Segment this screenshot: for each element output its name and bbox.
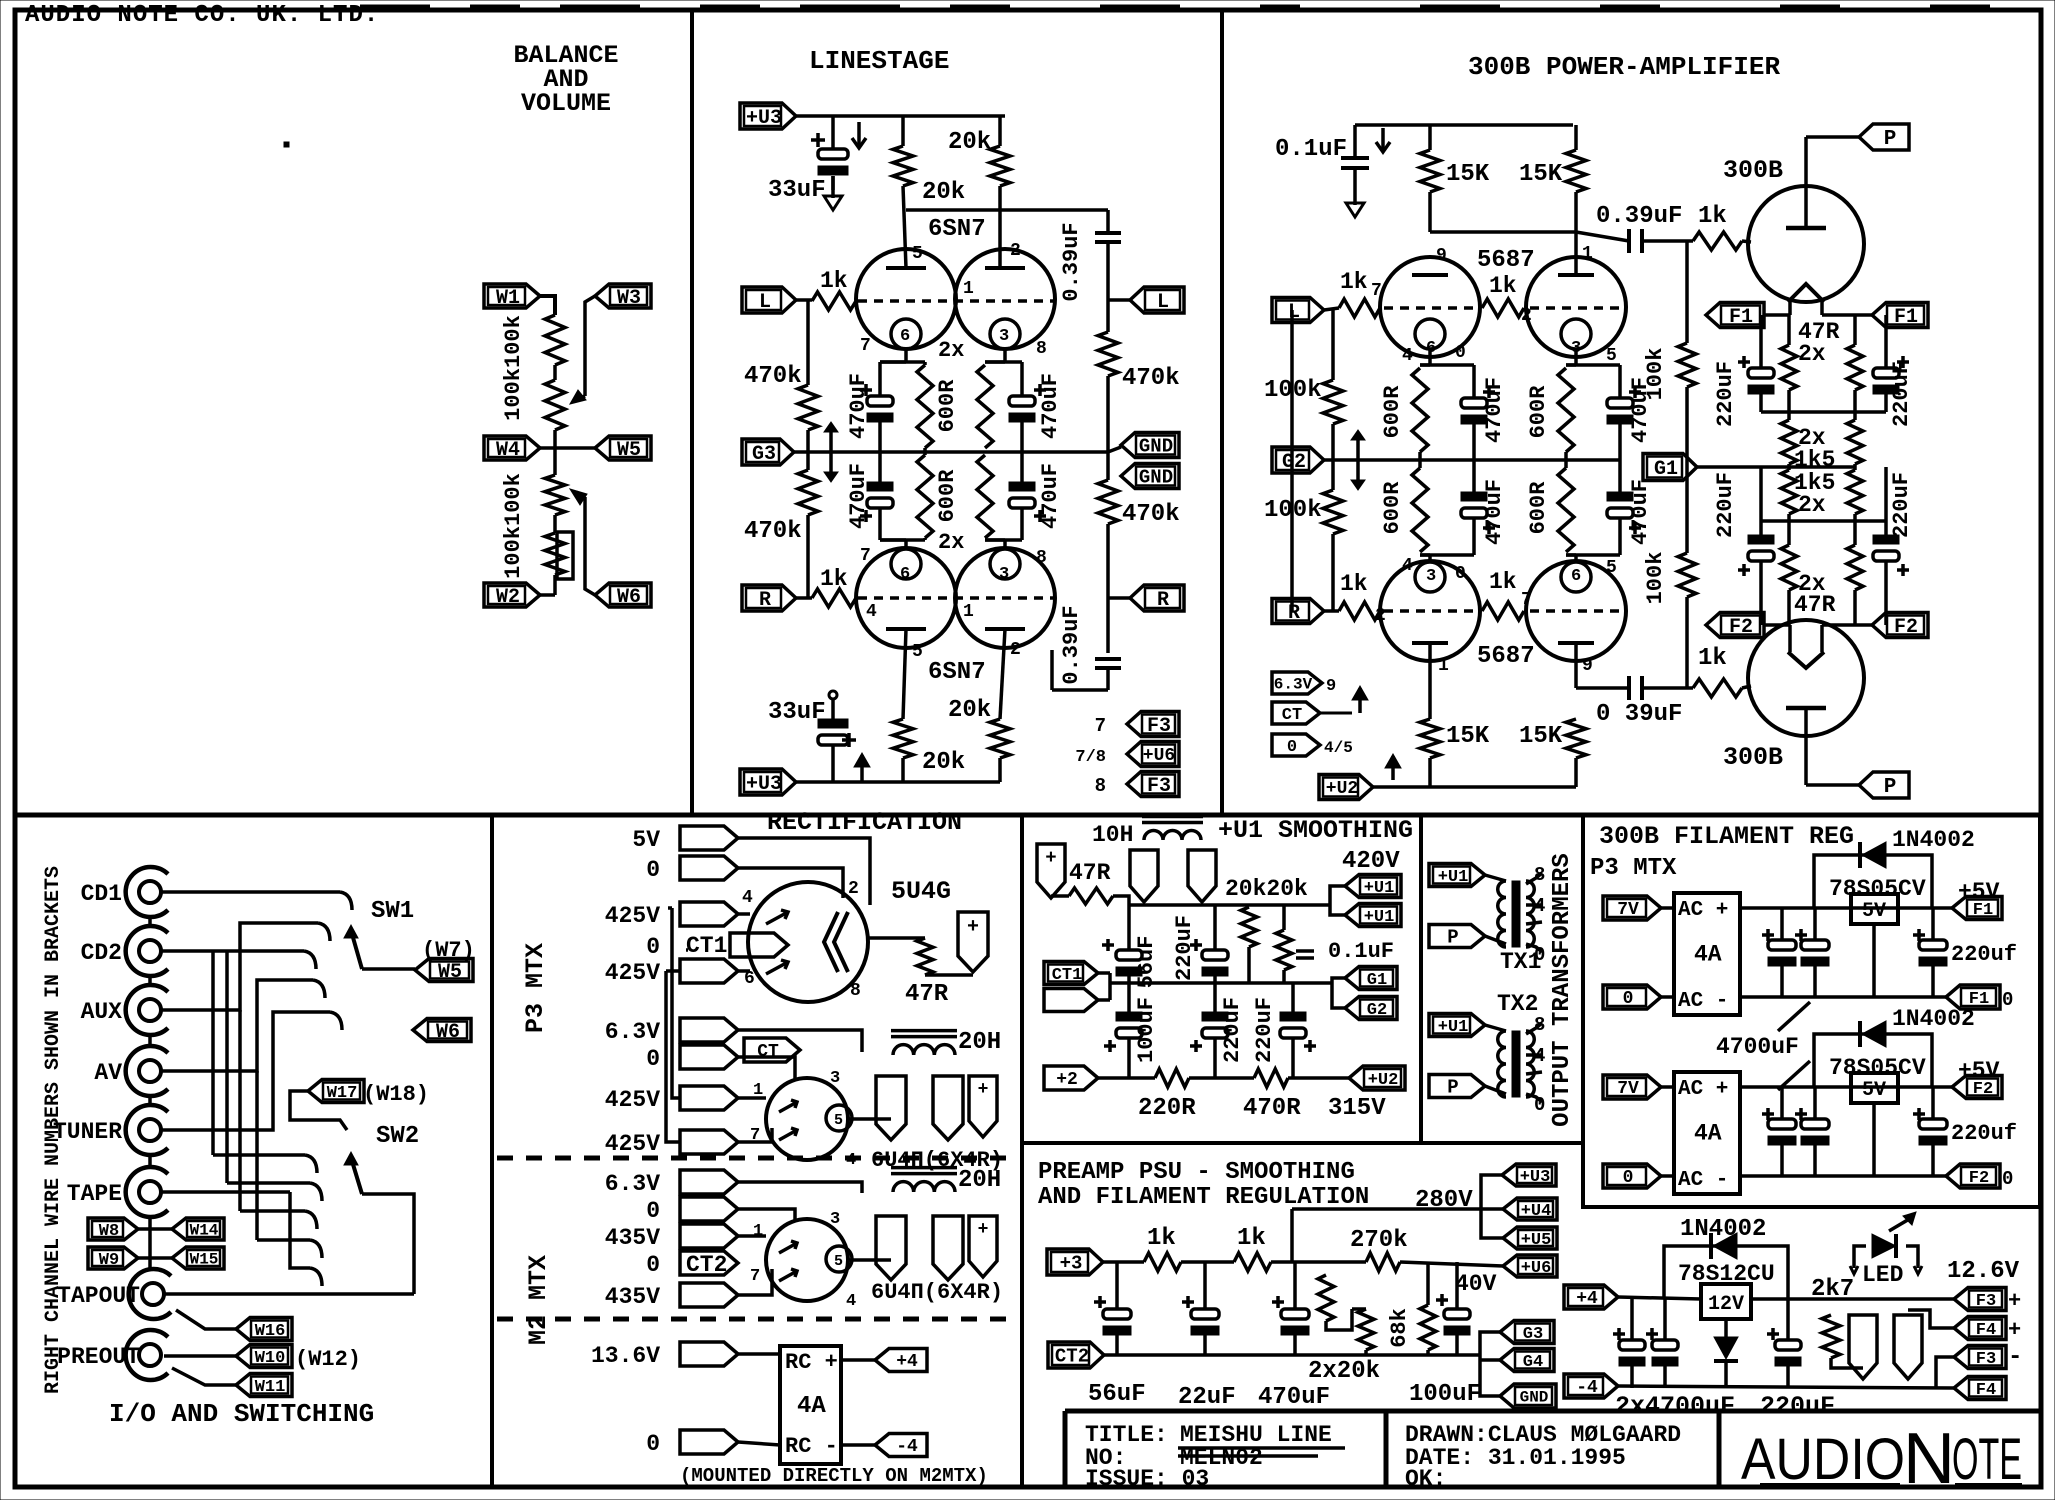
svg-text:100uF: 100uF: [1134, 997, 1159, 1063]
svg-text:0: 0: [646, 1431, 660, 1457]
svg-text:220uF: 220uF: [1760, 1392, 1835, 1421]
svg-text:3: 3: [999, 327, 1009, 346]
svg-text:68k: 68k: [1387, 1308, 1412, 1348]
svg-text:CT2: CT2: [686, 1252, 727, 1278]
svg-text:0: 0: [1455, 343, 1466, 363]
svg-text:8: 8: [1036, 548, 1047, 568]
svg-text:1k: 1k: [1340, 269, 1368, 295]
svg-text:6: 6: [1571, 567, 1581, 586]
svg-text:7V: 7V: [1617, 900, 1639, 920]
svg-text:+U3: +U3: [1520, 1168, 1551, 1187]
svg-text:600R: 600R: [1526, 385, 1551, 439]
svg-text:470k: 470k: [1122, 501, 1180, 528]
svg-text:470uF: 470uF: [1482, 377, 1507, 443]
svg-text:F1: F1: [1894, 306, 1918, 329]
svg-text:15K: 15K: [1446, 161, 1490, 188]
svg-text:220uf: 220uf: [1951, 942, 2017, 967]
svg-text:600R: 600R: [935, 469, 960, 523]
svg-text:W14: W14: [190, 1221, 219, 1239]
svg-text:6.3V: 6.3V: [1274, 675, 1313, 693]
svg-text:+U2: +U2: [1368, 1071, 1399, 1090]
svg-text:220R: 220R: [1138, 1095, 1196, 1122]
svg-text:SW2: SW2: [376, 1123, 419, 1150]
svg-text:F2: F2: [1969, 1169, 1989, 1188]
svg-text:L: L: [1157, 291, 1169, 314]
svg-text:F3: F3: [1976, 1292, 1996, 1311]
svg-text:470uF: 470uF: [1038, 373, 1063, 439]
svg-text:PREAMP PSU - SMOOTHING: PREAMP PSU - SMOOTHING: [1038, 1159, 1355, 1186]
svg-text:W4: W4: [496, 439, 520, 462]
svg-text:G3: G3: [752, 443, 776, 466]
svg-text:PREOUT: PREOUT: [57, 1344, 140, 1370]
svg-text:100k: 100k: [1264, 497, 1322, 524]
svg-text:470uF: 470uF: [846, 463, 871, 529]
svg-text:47R: 47R: [1794, 592, 1836, 618]
svg-text:G2: G2: [1367, 1001, 1387, 1020]
svg-text:RC +: RC +: [785, 1350, 838, 1375]
svg-text:0: 0: [1287, 738, 1297, 757]
svg-text:+2: +2: [1056, 1070, 1078, 1090]
svg-text:+: +: [2008, 1289, 2021, 1314]
svg-text:TUNER: TUNER: [53, 1119, 122, 1145]
svg-text:8: 8: [1036, 339, 1047, 359]
svg-text:AND FILAMENT REGULATION: AND FILAMENT REGULATION: [1038, 1184, 1369, 1211]
svg-text:6.3V: 6.3V: [605, 1171, 660, 1197]
svg-text:CT1: CT1: [686, 933, 727, 959]
svg-text:220uF: 220uF: [1889, 472, 1914, 538]
svg-text:AC -: AC -: [1678, 1169, 1728, 1192]
svg-text:W17: W17: [327, 1084, 358, 1103]
svg-text:F3: F3: [1976, 1350, 1996, 1369]
svg-text:+: +: [978, 1080, 989, 1100]
svg-text:220uF: 220uF: [1220, 997, 1245, 1063]
svg-text:SW1: SW1: [371, 898, 414, 925]
svg-text:600R: 600R: [1526, 481, 1551, 535]
svg-text:W2: W2: [496, 586, 520, 609]
svg-text:300B FILAMENT REG: 300B FILAMENT REG: [1599, 822, 1854, 851]
svg-text:CT: CT: [1282, 706, 1302, 725]
svg-text:LED: LED: [1862, 1262, 1903, 1288]
svg-text:100k100k: 100k100k: [501, 315, 526, 421]
svg-text:4: 4: [1534, 1045, 1545, 1067]
svg-text:4A: 4A: [797, 1393, 826, 1420]
svg-text:AV: AV: [94, 1060, 122, 1086]
svg-text:8: 8: [1534, 1014, 1545, 1036]
svg-text:R: R: [1157, 589, 1169, 612]
svg-text:5V: 5V: [632, 827, 660, 853]
svg-text:1: 1: [963, 602, 974, 622]
svg-text:GND: GND: [1139, 435, 1173, 457]
svg-text:G2: G2: [1282, 451, 1306, 474]
svg-text:0.39uF: 0.39uF: [1059, 222, 1084, 301]
svg-text:OK:: OK:: [1405, 1466, 1446, 1492]
svg-text:4: 4: [846, 1292, 856, 1311]
svg-text:20H: 20H: [958, 1167, 1001, 1194]
svg-text:15K: 15K: [1519, 161, 1563, 188]
svg-text:315V: 315V: [1328, 1095, 1386, 1122]
svg-text:220uf: 220uf: [1951, 1121, 2017, 1146]
svg-text:600R: 600R: [935, 379, 960, 433]
svg-text:22uF: 22uF: [1178, 1384, 1236, 1411]
svg-text:ISSUE: 03: ISSUE: 03: [1085, 1466, 1209, 1492]
svg-text:600R: 600R: [1380, 481, 1405, 535]
svg-text:5: 5: [912, 642, 923, 662]
svg-text:0.1uF: 0.1uF: [1328, 939, 1394, 964]
svg-text:F3: F3: [1147, 775, 1171, 798]
svg-text:1N4002: 1N4002: [1892, 827, 1975, 853]
svg-text:56uF: 56uF: [1134, 936, 1159, 989]
svg-text:G4: G4: [1523, 1353, 1543, 1372]
svg-text:0: 0: [1455, 564, 1466, 584]
svg-text:W3: W3: [617, 287, 641, 310]
svg-text:OTE: OTE: [1952, 1427, 2022, 1492]
svg-text:470uF: 470uF: [1038, 463, 1063, 529]
svg-text:2: 2: [1010, 640, 1021, 660]
svg-text:+U1: +U1: [1364, 908, 1395, 927]
svg-text:220uF: 220uF: [1889, 361, 1914, 427]
svg-text:4: 4: [1534, 895, 1545, 917]
svg-text:20k: 20k: [922, 749, 965, 776]
svg-text:P: P: [1884, 776, 1897, 799]
svg-text:1k: 1k: [1489, 273, 1517, 299]
svg-text:+U1 SMOOTHING: +U1 SMOOTHING: [1218, 816, 1413, 845]
svg-text:425V: 425V: [605, 1087, 660, 1113]
svg-text:+4: +4: [896, 1352, 918, 1372]
svg-text:2x: 2x: [1798, 492, 1826, 518]
svg-text:5V: 5V: [1862, 1079, 1886, 1102]
svg-text:+U1: +U1: [1438, 1018, 1469, 1037]
svg-text:4: 4: [742, 888, 753, 908]
svg-text:-4: -4: [896, 1437, 918, 1457]
svg-text:1: 1: [1582, 244, 1593, 264]
svg-text:6: 6: [900, 327, 910, 346]
svg-text:VOLUME: VOLUME: [521, 89, 611, 118]
svg-text:W6: W6: [617, 586, 641, 609]
svg-text:8: 8: [1534, 864, 1545, 886]
svg-text:0: 0: [646, 1252, 660, 1278]
svg-text:600R: 600R: [1380, 385, 1405, 439]
svg-text:5: 5: [912, 244, 923, 264]
svg-text:7V: 7V: [1617, 1079, 1639, 1099]
svg-text:5: 5: [834, 1253, 843, 1270]
svg-text:220uF: 220uF: [1713, 361, 1738, 427]
svg-text:TX1: TX1: [1500, 949, 1541, 975]
svg-text:TAPOUT: TAPOUT: [57, 1283, 140, 1309]
svg-text:1k: 1k: [1147, 1225, 1176, 1252]
svg-text:9: 9: [1436, 246, 1447, 266]
svg-text:P3 MTX: P3 MTX: [521, 943, 550, 1033]
svg-text:W8: W8: [99, 1222, 119, 1241]
svg-text:+U6: +U6: [1521, 1259, 1552, 1278]
svg-text:2x20k: 2x20k: [1308, 1358, 1380, 1385]
svg-text:AC +: AC +: [1678, 899, 1728, 922]
svg-text:220uF: 220uF: [1713, 472, 1738, 538]
svg-text:0 39uF: 0 39uF: [1596, 701, 1682, 728]
svg-text:425V: 425V: [605, 960, 660, 986]
svg-text:CD1: CD1: [81, 881, 122, 907]
svg-text:12V: 12V: [1708, 1293, 1744, 1316]
svg-text:300B: 300B: [1723, 743, 1783, 772]
svg-text:+: +: [978, 1220, 989, 1240]
svg-text:4: 4: [866, 602, 877, 622]
svg-text:M2 MTX: M2 MTX: [524, 1255, 553, 1345]
svg-text:47R: 47R: [905, 981, 949, 1008]
svg-text:4A: 4A: [1694, 942, 1722, 968]
svg-text:7: 7: [860, 336, 871, 356]
svg-text:33uF: 33uF: [768, 177, 826, 204]
svg-text:G1: G1: [1654, 458, 1678, 481]
svg-text:15K: 15K: [1519, 723, 1563, 750]
svg-text:W1: W1: [496, 287, 520, 310]
svg-text:P: P: [1447, 926, 1458, 948]
svg-text:0.1uF: 0.1uF: [1275, 136, 1347, 163]
svg-text:AC -: AC -: [1678, 990, 1728, 1013]
svg-text:0: 0: [1534, 1094, 1545, 1116]
svg-text:P: P: [1884, 128, 1897, 151]
svg-text:3: 3: [1426, 567, 1436, 586]
svg-text:2x: 2x: [1798, 341, 1826, 367]
svg-text:P: P: [1447, 1076, 1458, 1098]
svg-text:AUDIO NOTE CO. UK. LTD.: AUDIO NOTE CO. UK. LTD.: [25, 2, 379, 29]
svg-text:3: 3: [830, 1210, 840, 1229]
svg-text:2x: 2x: [938, 530, 964, 555]
svg-text:F1: F1: [1729, 306, 1753, 329]
svg-text:-4: -4: [1576, 1378, 1598, 1398]
svg-text:+U1: +U1: [1438, 868, 1469, 887]
svg-text:0: 0: [2002, 989, 2013, 1011]
svg-text:470uF: 470uF: [846, 373, 871, 439]
svg-text:W6: W6: [436, 1021, 460, 1044]
svg-text:300B POWER-AMPLIFIER: 300B POWER-AMPLIFIER: [1468, 52, 1780, 82]
svg-text:1k: 1k: [1698, 203, 1727, 230]
svg-text:7: 7: [1095, 715, 1106, 737]
svg-text:4: 4: [1402, 346, 1413, 366]
svg-text:0: 0: [1623, 989, 1634, 1009]
svg-text:AC +: AC +: [1678, 1078, 1728, 1101]
svg-text:(W18): (W18): [363, 1082, 429, 1107]
svg-text:13.6V: 13.6V: [591, 1343, 660, 1369]
svg-text:AUDIO: AUDIO: [1741, 1427, 1905, 1492]
svg-text:I/O AND SWITCHING: I/O AND SWITCHING: [109, 1399, 374, 1429]
svg-text:+4: +4: [1576, 1289, 1598, 1309]
svg-text:6SN7: 6SN7: [928, 659, 986, 686]
svg-text:4/5: 4/5: [1324, 739, 1353, 757]
svg-text:1k: 1k: [1340, 571, 1368, 597]
svg-text:20k: 20k: [948, 129, 991, 156]
svg-text:5: 5: [1606, 346, 1617, 366]
svg-text:470R: 470R: [1243, 1095, 1301, 1122]
svg-text:20k: 20k: [948, 697, 991, 724]
svg-text:+3: +3: [1060, 1252, 1083, 1274]
svg-text:F3: F3: [1147, 715, 1171, 738]
svg-text:4700uF: 4700uF: [1716, 1034, 1799, 1060]
svg-text:N: N: [1903, 1419, 1955, 1499]
svg-text:F2: F2: [1894, 616, 1918, 639]
svg-text:(MOUNTED DIRECTLY ON M2MTX): (MOUNTED DIRECTLY ON M2MTX): [680, 1465, 988, 1487]
svg-text:6U4П(6X4R): 6U4П(6X4R): [871, 1280, 1003, 1305]
svg-text:9: 9: [1582, 656, 1593, 676]
svg-text:435V: 435V: [605, 1284, 660, 1310]
svg-text:L: L: [759, 291, 771, 314]
svg-text:1N4002: 1N4002: [1680, 1216, 1766, 1243]
svg-text:F4: F4: [1976, 1381, 1996, 1400]
svg-text:12.6V: 12.6V: [1947, 1258, 2020, 1285]
svg-text:G3: G3: [1523, 1325, 1543, 1344]
svg-text:15K: 15K: [1446, 723, 1490, 750]
svg-text:4: 4: [1402, 556, 1413, 576]
svg-text:(W12): (W12): [295, 1347, 361, 1372]
svg-text:1k: 1k: [820, 268, 848, 294]
svg-text:CD2: CD2: [81, 940, 122, 966]
svg-text:5: 5: [1606, 558, 1617, 578]
svg-text:G1: G1: [1367, 971, 1387, 990]
svg-text:L: L: [1288, 301, 1300, 324]
svg-text:2k7: 2k7: [1811, 1276, 1854, 1303]
svg-text:RC -: RC -: [785, 1434, 838, 1459]
svg-text:300B: 300B: [1723, 156, 1783, 185]
svg-text:8: 8: [850, 981, 861, 1001]
svg-text:0.39uF: 0.39uF: [1596, 203, 1682, 230]
svg-text:0: 0: [1623, 1168, 1634, 1188]
svg-text:5U4G: 5U4G: [891, 877, 951, 906]
svg-text:R: R: [1288, 602, 1300, 625]
svg-text:6SN7: 6SN7: [928, 216, 986, 243]
svg-text:0.39uF: 0.39uF: [1059, 605, 1084, 684]
svg-text:9: 9: [1326, 677, 1336, 696]
svg-text:56uF: 56uF: [1088, 1381, 1146, 1408]
svg-text:220uF: 220uF: [1172, 915, 1197, 981]
svg-text:R: R: [759, 589, 771, 612]
svg-text:GND: GND: [1520, 1388, 1549, 1406]
svg-text:+: +: [967, 916, 979, 939]
svg-text:78S05CV: 78S05CV: [1829, 1055, 1926, 1081]
svg-text:F2: F2: [1973, 1080, 1993, 1099]
svg-text:5V: 5V: [1862, 900, 1886, 923]
svg-text:425V: 425V: [605, 903, 660, 929]
svg-text:0: 0: [646, 857, 660, 883]
svg-text:7: 7: [750, 1267, 760, 1286]
svg-text:+U6: +U6: [1143, 746, 1175, 766]
svg-text:470k: 470k: [744, 363, 802, 390]
svg-text:5: 5: [834, 1112, 843, 1129]
svg-text:CT1: CT1: [1052, 966, 1083, 985]
svg-text:CT2: CT2: [1055, 1345, 1089, 1367]
svg-text:W5: W5: [617, 439, 641, 462]
svg-text:0: 0: [2002, 1168, 2013, 1190]
svg-text:1N4002: 1N4002: [1892, 1006, 1975, 1032]
svg-text:+U5: +U5: [1521, 1231, 1552, 1250]
svg-text:W11: W11: [255, 1378, 286, 1397]
svg-text:100k: 100k: [1264, 377, 1322, 404]
svg-text:10H: 10H: [1092, 822, 1133, 848]
svg-text:1k: 1k: [820, 566, 848, 592]
svg-text:1k: 1k: [1489, 569, 1517, 595]
svg-text:+U2: +U2: [1326, 779, 1358, 799]
svg-text:420V: 420V: [1342, 848, 1400, 875]
svg-text:LINESTAGE: LINESTAGE: [809, 46, 949, 76]
svg-text:470uF: 470uF: [1258, 1384, 1330, 1411]
svg-text:1k: 1k: [1698, 645, 1727, 672]
svg-text:+: +: [1045, 847, 1056, 869]
svg-text:100k: 100k: [1643, 348, 1668, 401]
svg-text:3: 3: [830, 1069, 840, 1088]
svg-text:5687: 5687: [1477, 247, 1535, 274]
svg-text:7/8: 7/8: [1075, 748, 1106, 767]
svg-text:GND: GND: [1139, 466, 1173, 488]
svg-text:2: 2: [1010, 241, 1021, 261]
svg-text:2x: 2x: [938, 338, 964, 363]
svg-text:W16: W16: [255, 1322, 286, 1341]
svg-text:5687: 5687: [1477, 643, 1535, 670]
svg-text:470k: 470k: [744, 518, 802, 545]
svg-text:270k: 270k: [1350, 1227, 1408, 1254]
svg-text:1: 1: [963, 279, 974, 299]
svg-text:TAPE: TAPE: [67, 1181, 122, 1207]
svg-text:47R: 47R: [1069, 860, 1111, 886]
svg-text:220uF: 220uF: [1252, 997, 1277, 1063]
svg-text:100k100k: 100k100k: [501, 473, 526, 579]
svg-text:TX2: TX2: [1497, 991, 1538, 1017]
svg-text:W5: W5: [438, 961, 462, 984]
svg-text:OUTPUT TRANSFORMERS: OUTPUT TRANSFORMERS: [1549, 853, 1576, 1127]
svg-text:W10: W10: [255, 1349, 286, 1368]
svg-text:+U1: +U1: [1364, 879, 1395, 898]
svg-text:470k: 470k: [1122, 365, 1180, 392]
svg-text:-: -: [2008, 1344, 2022, 1371]
svg-text:6.3V: 6.3V: [605, 1019, 660, 1045]
svg-text:6: 6: [900, 565, 910, 584]
svg-text:0: 0: [646, 934, 660, 960]
svg-text:470uF: 470uF: [1628, 479, 1653, 545]
svg-text:435V: 435V: [605, 1225, 660, 1251]
svg-text:8: 8: [1095, 775, 1106, 797]
svg-text:425V: 425V: [605, 1131, 660, 1157]
svg-text:CT: CT: [757, 1042, 779, 1062]
svg-text:P3 MTX: P3 MTX: [1590, 855, 1677, 882]
svg-text:40V: 40V: [1455, 1271, 1497, 1297]
svg-text:W9: W9: [99, 1251, 119, 1270]
svg-text:1: 1: [1438, 656, 1449, 676]
svg-text:20H: 20H: [958, 1029, 1001, 1056]
svg-text:2: 2: [848, 879, 859, 899]
svg-text:20k20k: 20k20k: [1225, 876, 1308, 902]
svg-text:100uF: 100uF: [1409, 1381, 1481, 1408]
svg-text:20k: 20k: [922, 179, 965, 206]
svg-text:+U3: +U3: [746, 773, 782, 796]
svg-text:F4: F4: [1976, 1321, 1996, 1340]
svg-text:33uF: 33uF: [768, 699, 826, 726]
svg-text:470uF: 470uF: [1482, 479, 1507, 545]
svg-text:7: 7: [860, 546, 871, 566]
svg-text:78S05CV: 78S05CV: [1829, 876, 1926, 902]
svg-text:0: 0: [646, 1198, 660, 1224]
svg-text:0: 0: [646, 1046, 660, 1072]
svg-text:+U4: +U4: [1521, 1202, 1552, 1221]
svg-text:F1: F1: [1973, 901, 1993, 920]
svg-text:1k: 1k: [1237, 1225, 1266, 1252]
svg-text:+: +: [2008, 1318, 2021, 1343]
svg-text:AUX: AUX: [81, 999, 123, 1025]
svg-text:F2: F2: [1729, 616, 1753, 639]
svg-text:100k: 100k: [1643, 552, 1668, 605]
svg-text:4A: 4A: [1694, 1121, 1722, 1147]
svg-text:RECTIFICATION: RECTIFICATION: [767, 808, 962, 837]
svg-text:3: 3: [999, 565, 1009, 584]
svg-text:1: 1: [753, 1222, 763, 1241]
svg-text:+U3: +U3: [746, 107, 782, 130]
svg-text:7: 7: [1371, 281, 1382, 301]
svg-text:W15: W15: [190, 1250, 219, 1268]
